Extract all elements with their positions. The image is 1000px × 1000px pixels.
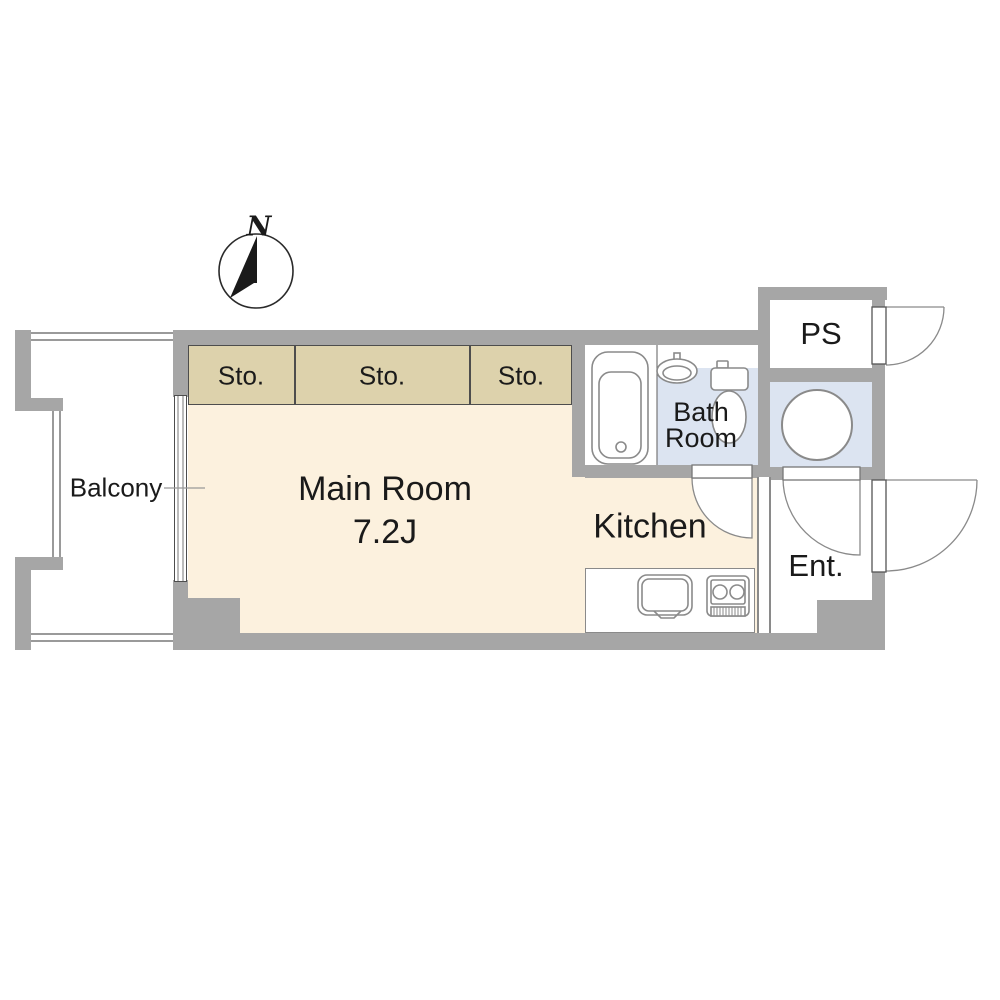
entrance-exterior-door-swing <box>872 480 977 572</box>
kitchen-label: Kitchen <box>593 508 706 547</box>
wall-corner-block <box>817 600 885 650</box>
wall-left-step <box>188 598 240 633</box>
partition-kitchen-entrance <box>757 477 771 633</box>
wall-right-lower <box>872 572 885 600</box>
balcony-pillar-bottom-left <box>15 557 31 650</box>
main-room-name: Main Room <box>298 468 472 511</box>
wall-ps-washer-divider <box>770 368 872 382</box>
balcony-pillar-bottom-foot <box>15 557 63 570</box>
balcony-rail-left <box>52 411 61 557</box>
entrance-label: Ent. <box>788 548 843 584</box>
balcony-label: Balcony <box>70 473 163 504</box>
balcony-window <box>174 395 187 582</box>
main-room-size: 7.2J <box>298 511 472 554</box>
wall-bath-bottom-left <box>585 465 692 478</box>
balcony-rail-bottom <box>31 633 173 642</box>
washer-room-door-swing <box>783 467 860 555</box>
storage-2-label: Sto. <box>359 361 405 392</box>
wall-ps-top <box>758 287 887 300</box>
pipe-space-label: PS <box>800 316 841 352</box>
washer-pan-circle <box>781 389 853 461</box>
wall-main-bath <box>572 330 585 477</box>
wall-bath-ps-vertical <box>758 287 770 480</box>
compass-north-label: N <box>247 212 272 243</box>
balcony-rail-top <box>31 332 173 341</box>
storage-1-label: Sto. <box>218 361 264 392</box>
compass-north-icon <box>219 234 293 308</box>
bathroom-label: Bath Room <box>665 399 737 451</box>
wall-ps-right-top <box>872 287 885 307</box>
main-room-label: Main Room 7.2J <box>298 468 472 554</box>
wall-washer-bottom-right <box>860 467 872 480</box>
wall-left-upper <box>173 330 188 397</box>
ps-exterior-door-swing <box>872 307 944 365</box>
wall-right-mid <box>872 363 885 480</box>
balcony-pillar-top-foot <box>15 398 63 411</box>
wall-washer-bottom-left <box>770 467 783 480</box>
balcony-pillar-top-left <box>15 330 31 400</box>
storage-3-label: Sto. <box>498 361 544 392</box>
kitchen-counter <box>585 568 755 633</box>
bathroom-label-line1: Bath <box>665 399 737 425</box>
wall-bottom <box>173 633 817 650</box>
bathroom-label-line2: Room <box>665 425 737 451</box>
floor-plan: N Balcony Sto. Sto. Sto. Main Room 7.2J … <box>0 0 1000 1000</box>
wall-top <box>173 330 758 345</box>
